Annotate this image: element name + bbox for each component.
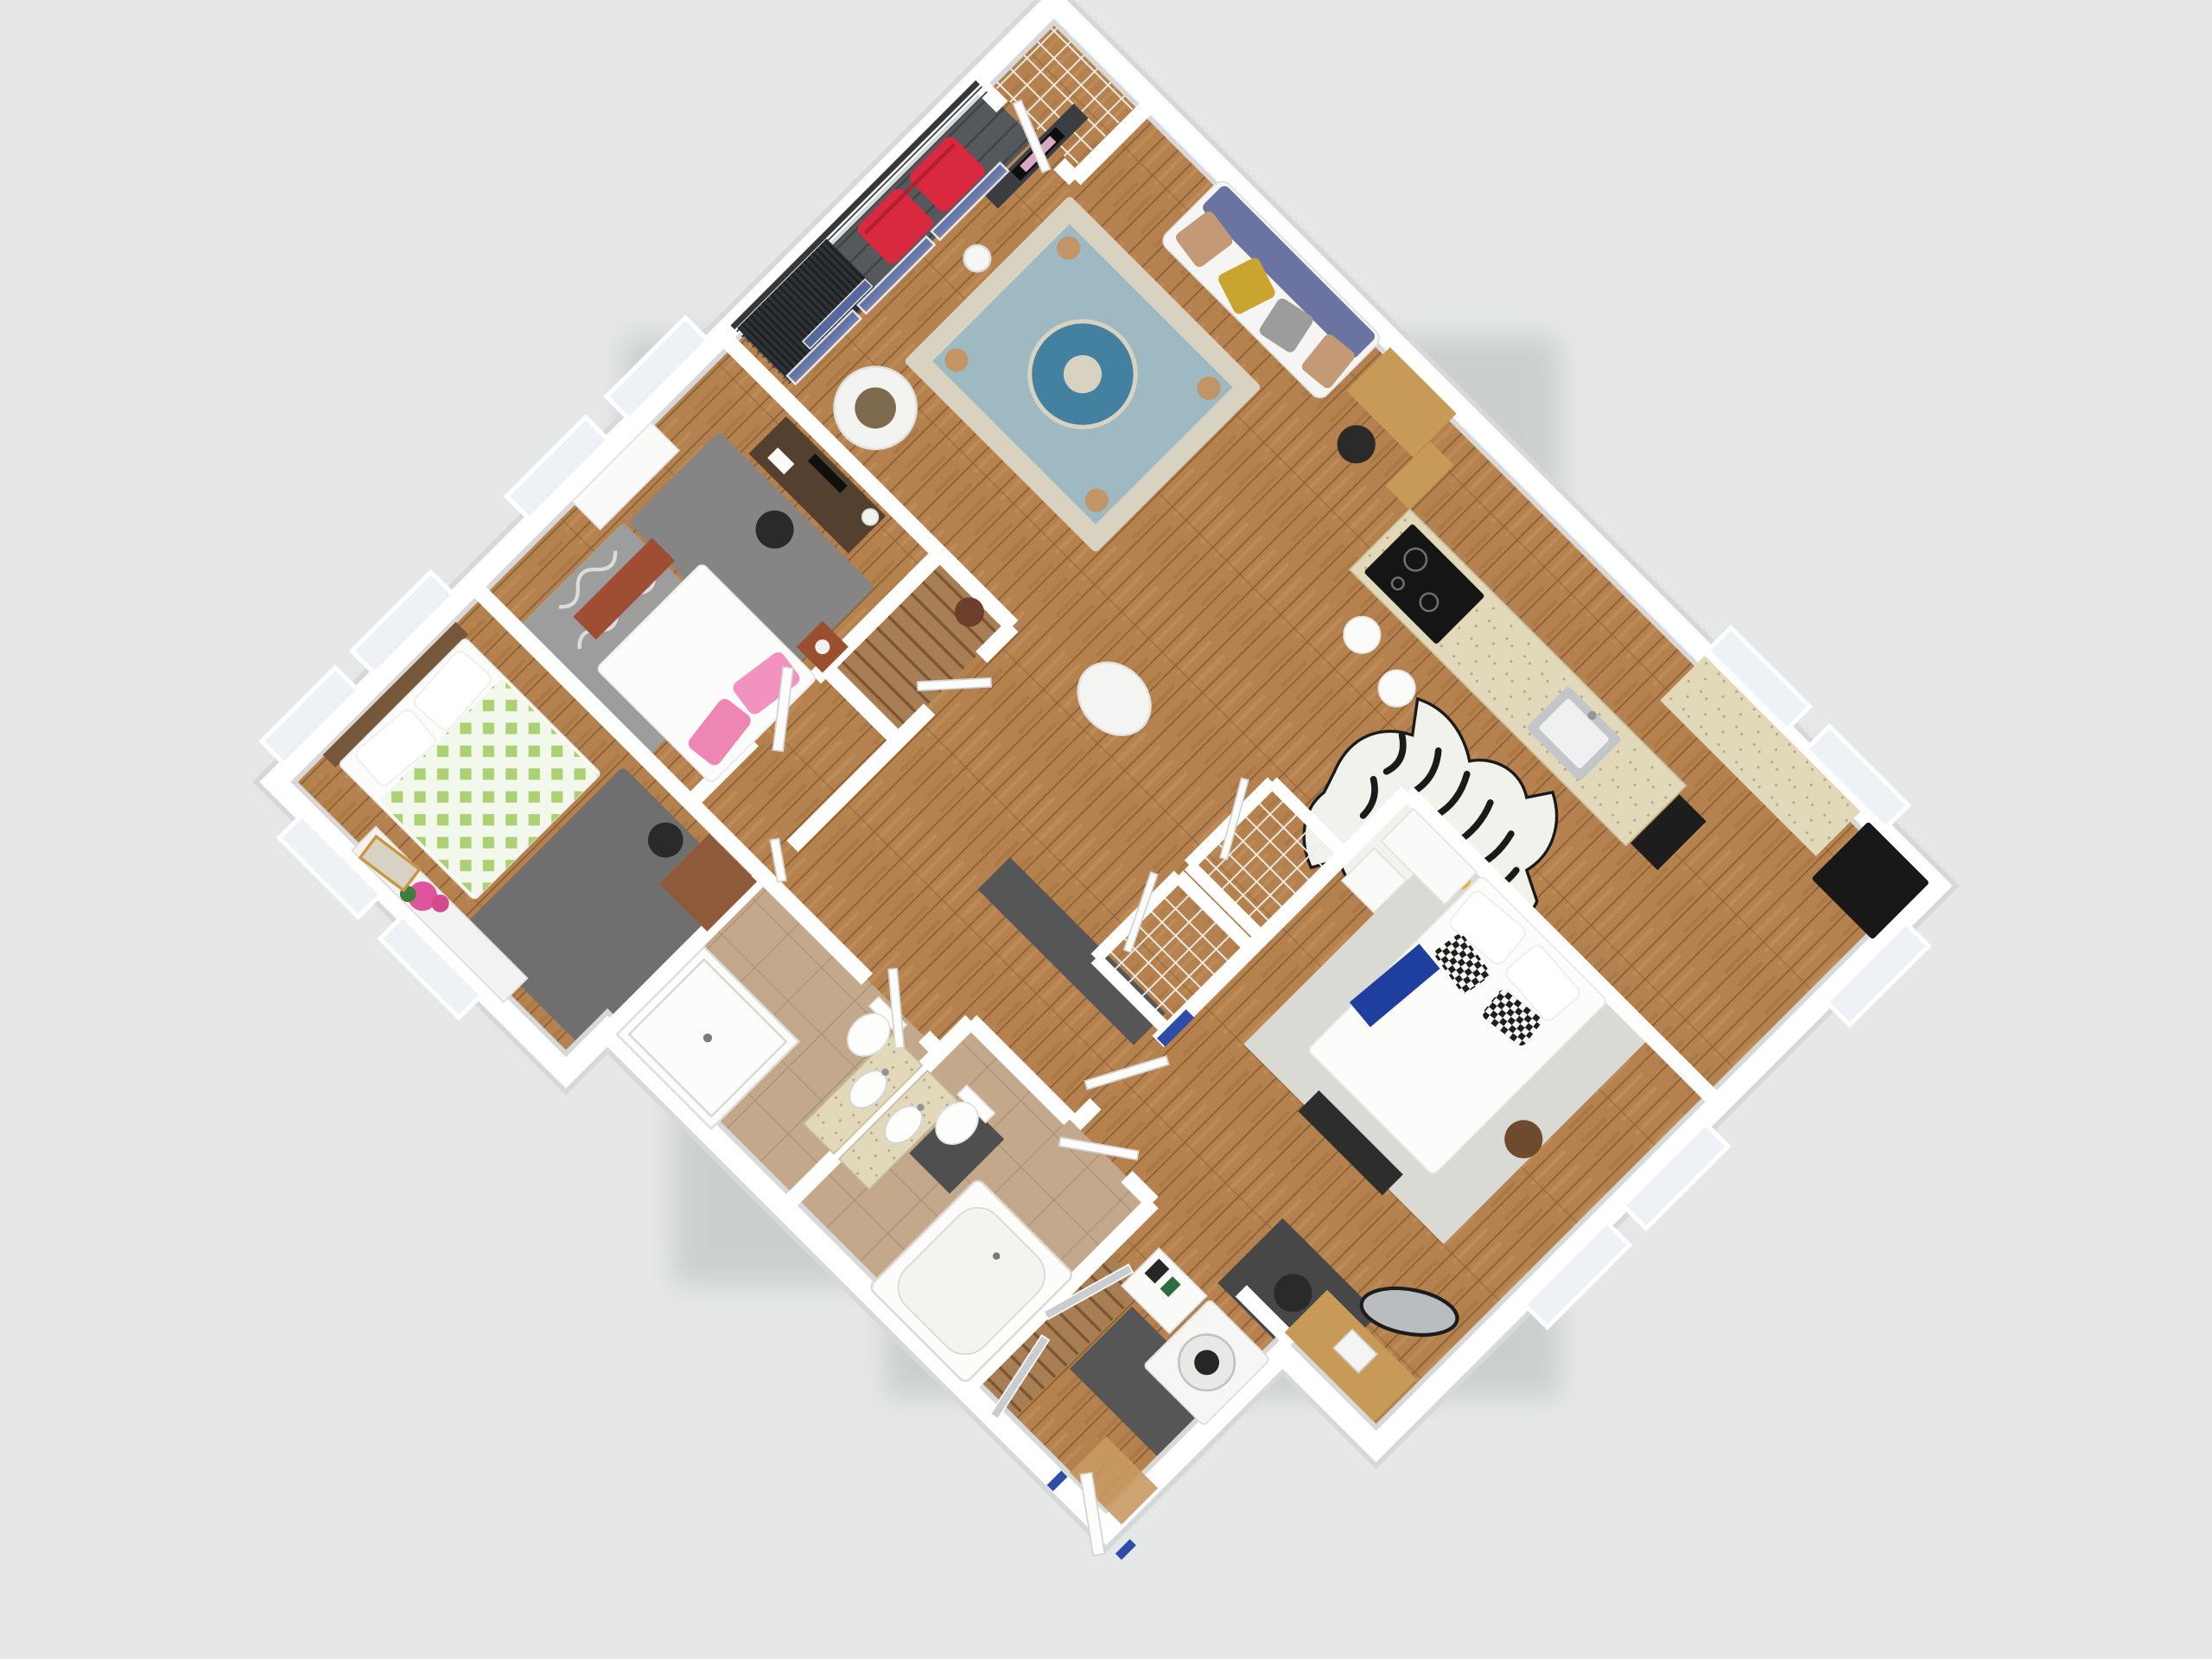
floorplan-render-stage	[0, 0, 2212, 1659]
wall-entry-closet-south-b	[1059, 164, 1075, 180]
apartment-3d-floorplan	[0, 0, 2212, 1659]
